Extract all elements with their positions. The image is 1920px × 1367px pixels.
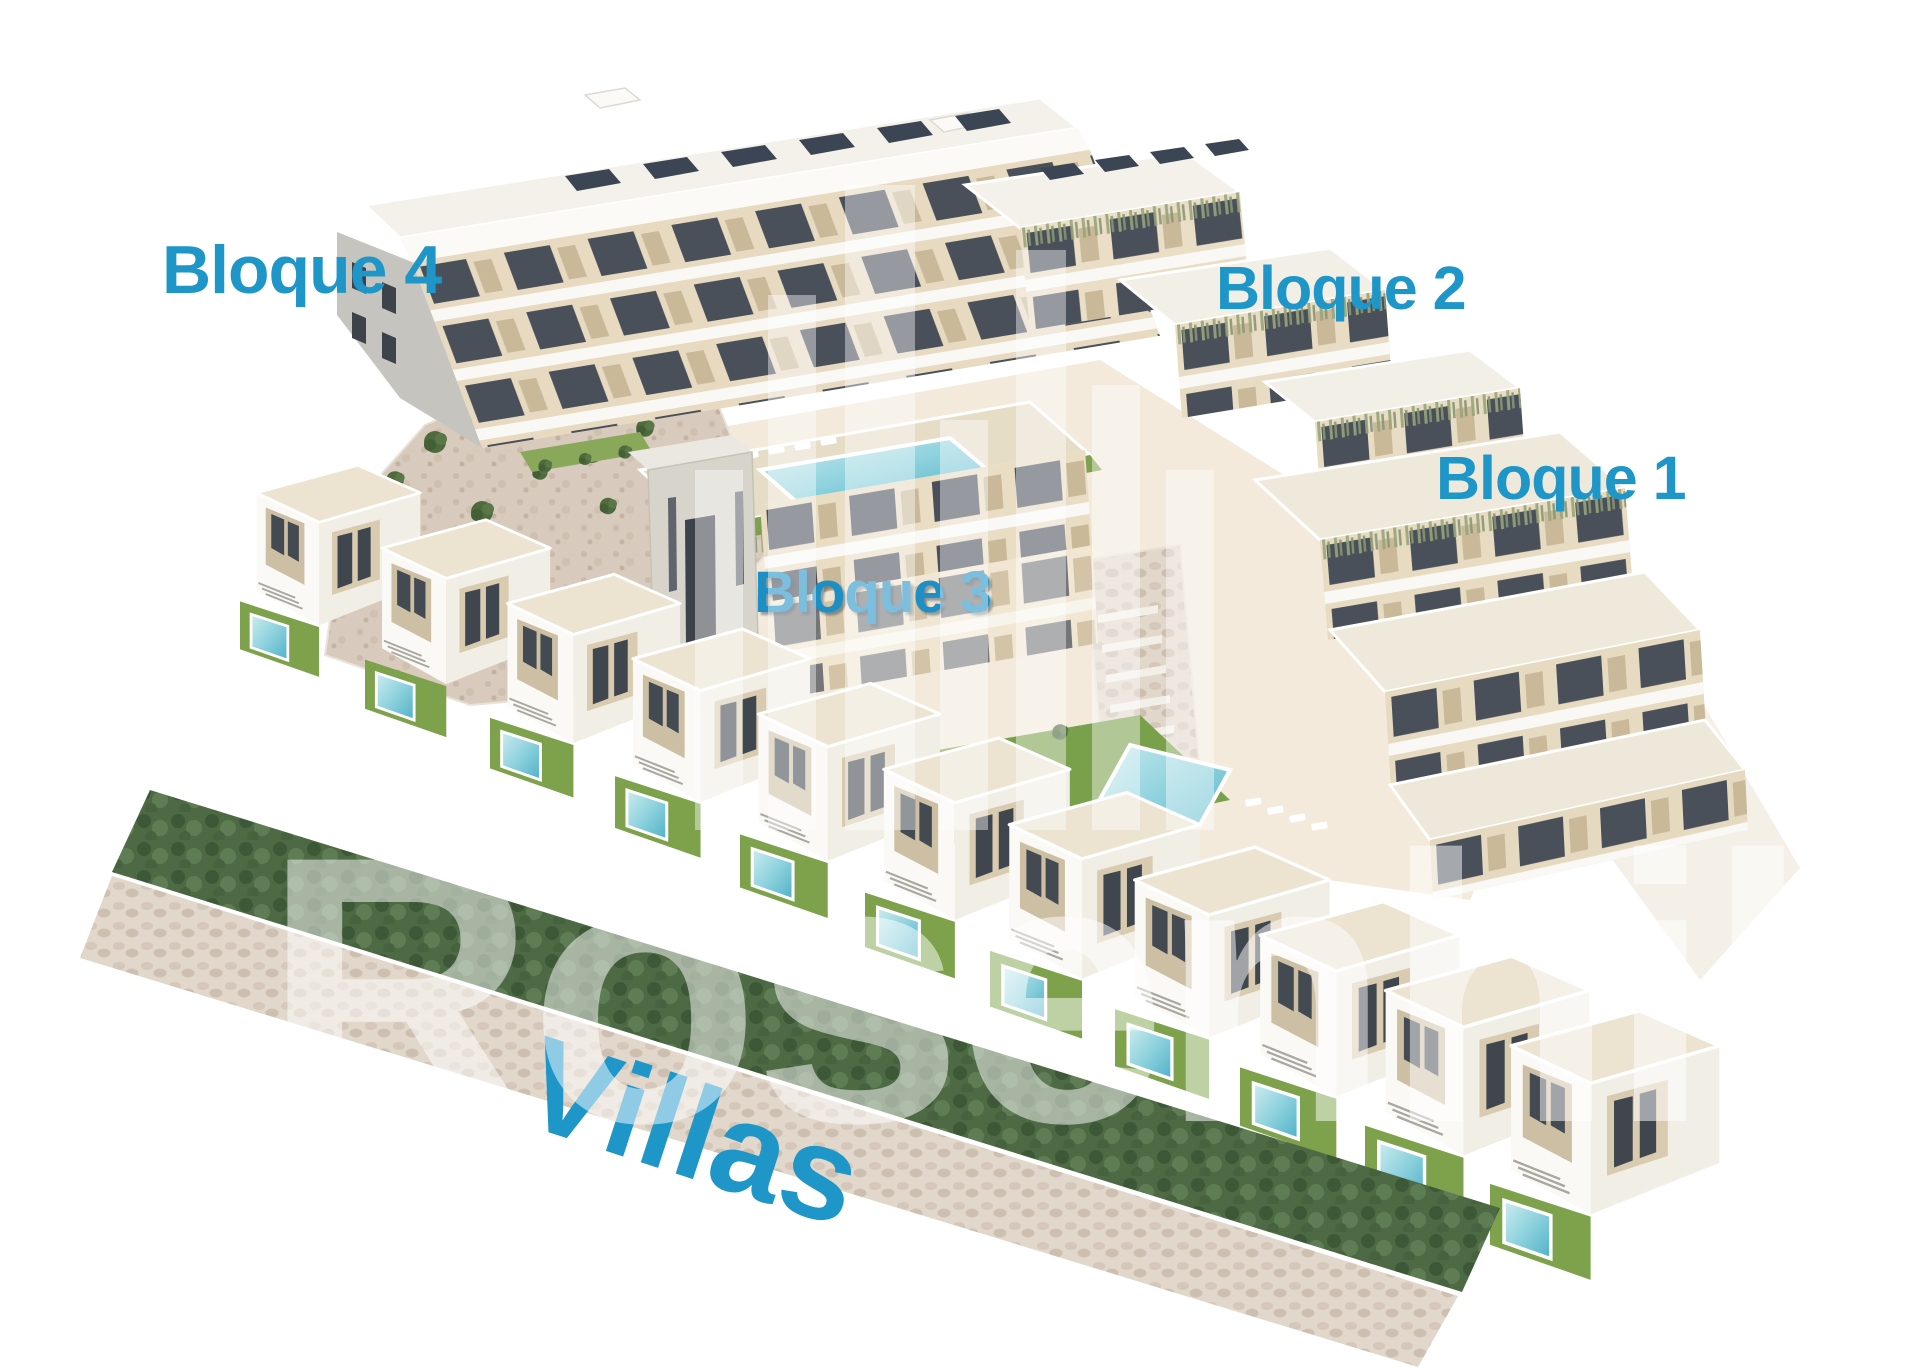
label-bloque-3: Bloque 3	[754, 564, 991, 622]
label-bloque-2: Bloque 2	[1216, 258, 1466, 319]
architectural-render: Bloque 4 Bloque 2 Bloque 1 Bloque 3 Vill…	[0, 0, 1920, 1367]
villa	[1490, 1011, 1719, 1280]
scene-illustration	[0, 0, 1920, 1367]
label-bloque-4: Bloque 4	[162, 236, 441, 304]
label-bloque-1: Bloque 1	[1436, 448, 1686, 509]
